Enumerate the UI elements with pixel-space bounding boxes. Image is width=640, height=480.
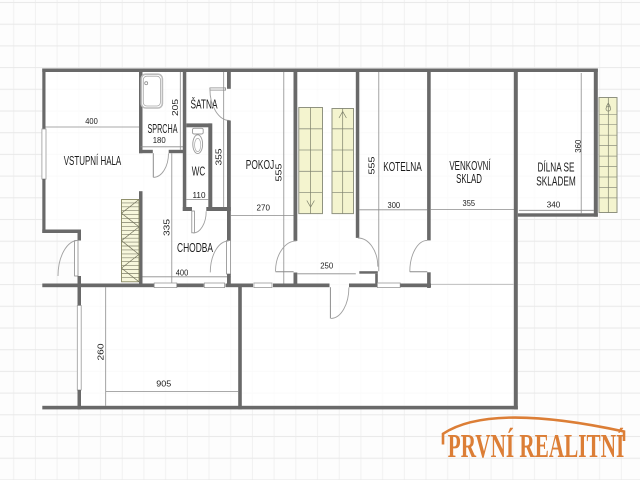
svg-text:CHODBA: CHODBA [177, 241, 213, 255]
svg-text:WC: WC [192, 165, 206, 179]
svg-text:SPRCHA: SPRCHA [148, 122, 178, 136]
svg-text:ŠATNA: ŠATNA [191, 97, 218, 112]
svg-text:250: 250 [320, 261, 333, 271]
svg-text:905: 905 [156, 379, 171, 389]
svg-text:VSTUPNÍ HALA: VSTUPNÍ HALA [64, 153, 122, 168]
svg-text:300: 300 [388, 200, 401, 210]
svg-text:180: 180 [153, 135, 166, 145]
svg-text:555: 555 [274, 163, 284, 181]
svg-text:SKLAD: SKLAD [456, 172, 482, 186]
svg-text:270: 270 [257, 203, 271, 213]
svg-text:355: 355 [463, 198, 476, 208]
svg-text:PRVNÍ REALITNÍ: PRVNÍ REALITNÍ [448, 428, 625, 465]
svg-text:355: 355 [214, 148, 224, 165]
svg-text:335: 335 [162, 219, 172, 236]
svg-text:110: 110 [193, 190, 206, 200]
svg-text:SKLADEM: SKLADEM [536, 175, 576, 189]
svg-text:555: 555 [366, 156, 376, 174]
svg-text:POKOJ: POKOJ [246, 158, 274, 172]
svg-text:400: 400 [85, 116, 98, 126]
svg-text:400: 400 [176, 268, 189, 278]
svg-text:340: 340 [547, 200, 561, 210]
svg-text:VENKOVNÍ: VENKOVNÍ [449, 158, 491, 173]
svg-text:360: 360 [573, 139, 583, 152]
svg-text:KOTELNA: KOTELNA [383, 160, 422, 174]
svg-text:205: 205 [170, 99, 180, 116]
svg-text:260: 260 [96, 343, 106, 360]
svg-text:DÍLNA SE: DÍLNA SE [538, 160, 575, 175]
